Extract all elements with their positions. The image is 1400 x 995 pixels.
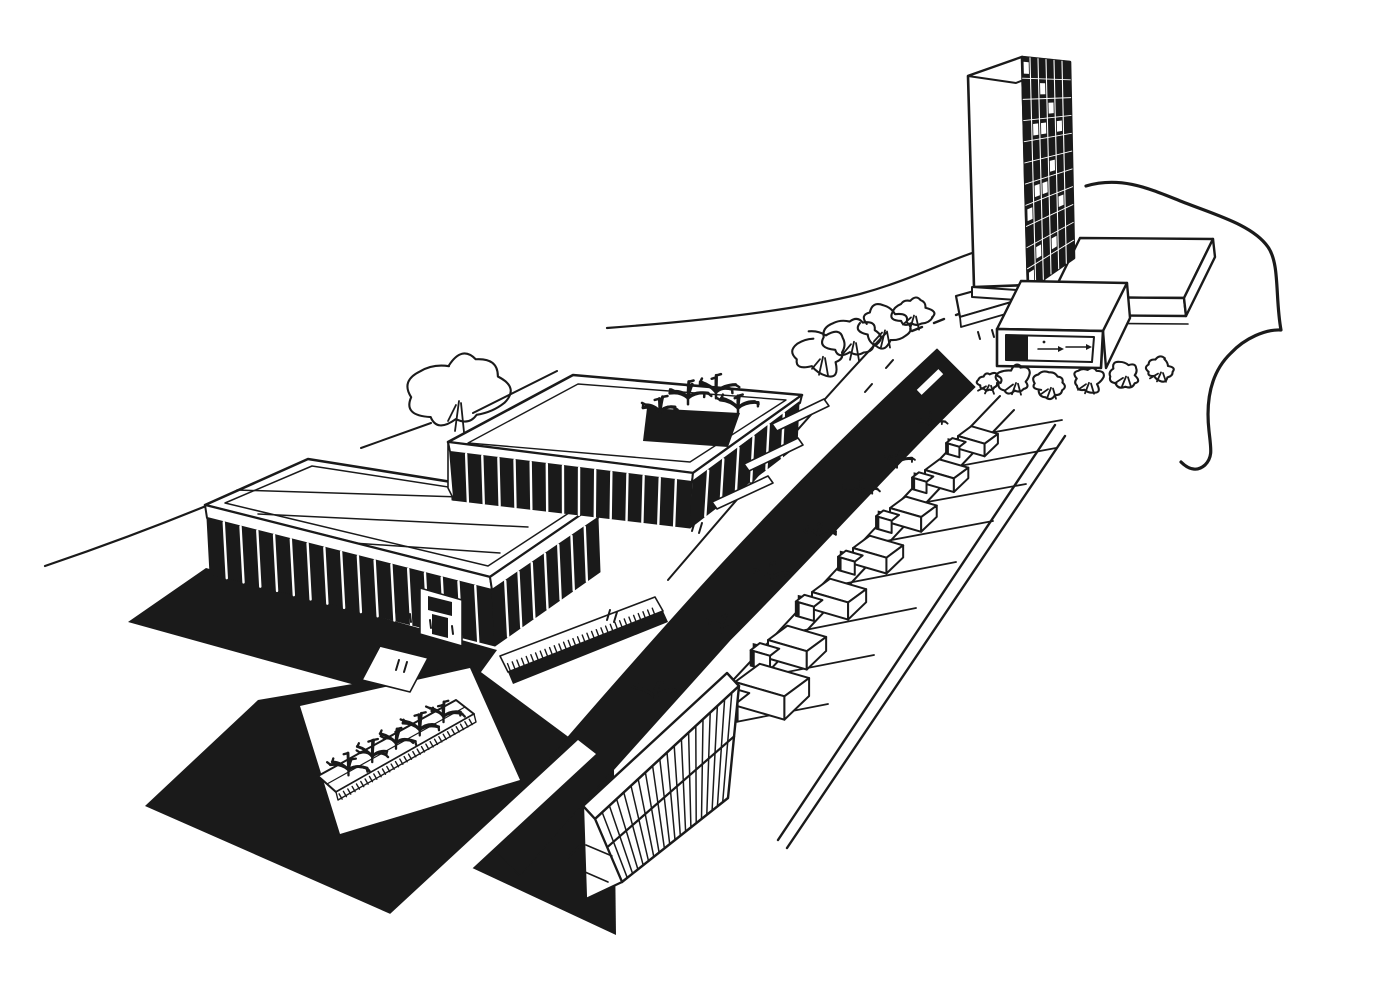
entrance-box-building [997, 281, 1130, 368]
office-tower-slab [968, 57, 1074, 301]
architectural-sketch [0, 0, 1400, 995]
sketch-canvas [0, 0, 1400, 995]
